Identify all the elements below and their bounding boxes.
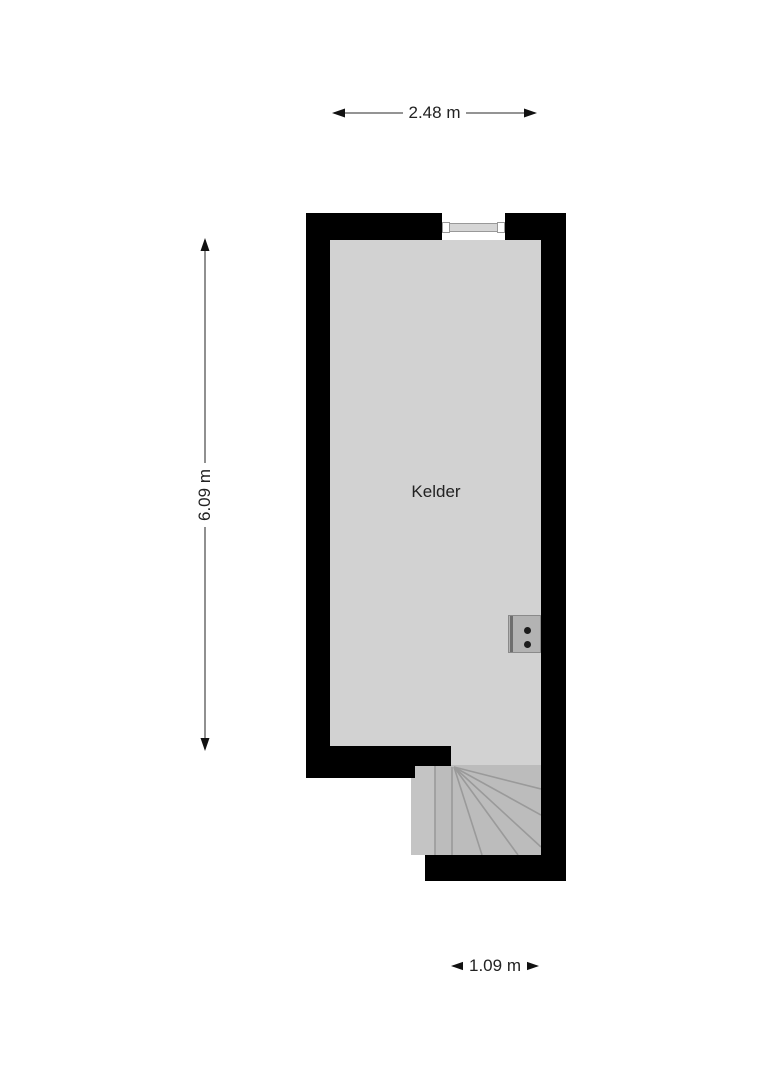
room-label-kelder: Kelder bbox=[411, 482, 460, 502]
staircase-treads bbox=[411, 765, 541, 855]
dimension-height: 6.09 m bbox=[197, 238, 213, 751]
wall-bottom-stairs bbox=[425, 855, 566, 881]
wall-right bbox=[541, 213, 566, 881]
room-kelder-floor-lower-strip bbox=[451, 746, 541, 765]
window-jamb-right bbox=[497, 222, 505, 233]
wall-left bbox=[306, 213, 330, 778]
fixture-stripe bbox=[510, 616, 513, 652]
dimension-width: 2.48 m bbox=[332, 104, 537, 122]
fixture-dot-bottom bbox=[524, 641, 531, 648]
fixture-dot-top bbox=[524, 627, 531, 634]
floorplan-canvas: Kelder 2.48 m 6.09 m 1.09 m bbox=[0, 0, 764, 1080]
dimension-height-label: 6.09 m bbox=[195, 463, 215, 527]
staircase bbox=[411, 765, 541, 855]
dimension-stair-width: 1.09 m bbox=[451, 957, 539, 975]
window-frame bbox=[449, 223, 498, 232]
wall-bottom-room-corner bbox=[306, 746, 415, 778]
wall-fixture-icon bbox=[508, 615, 541, 653]
dimension-width-label: 2.48 m bbox=[403, 103, 467, 123]
dimension-stair-width-label: 1.09 m bbox=[463, 956, 527, 976]
